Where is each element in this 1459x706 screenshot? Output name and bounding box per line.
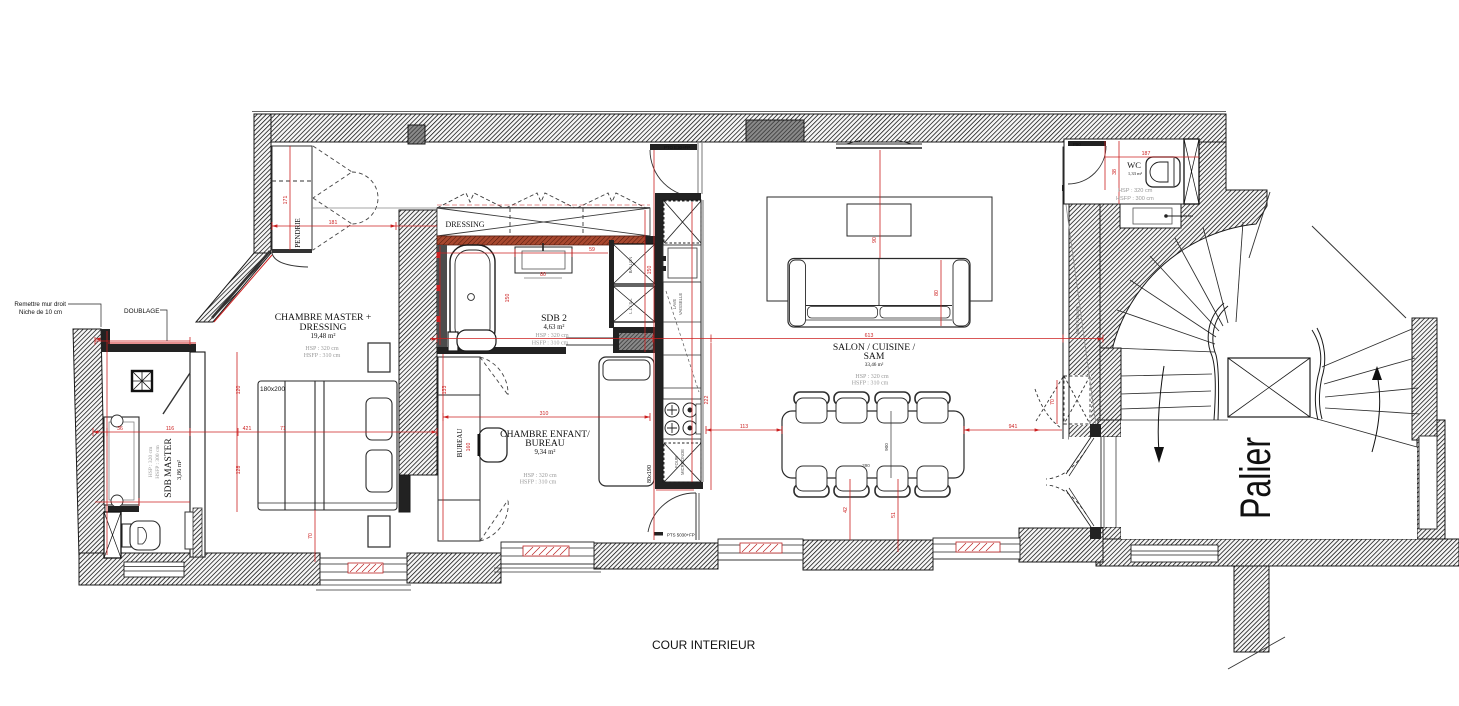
- svg-text:181: 181: [329, 220, 338, 226]
- svg-text:WC: WC: [1127, 160, 1141, 170]
- svg-text:51: 51: [891, 512, 897, 518]
- svg-text:80: 80: [540, 272, 546, 278]
- svg-text:187: 187: [1142, 151, 1151, 157]
- svg-text:L.L / S.L: L.L / S.L: [628, 298, 633, 314]
- svg-text:HSP : 320 cm: HSP : 320 cm: [148, 446, 154, 477]
- svg-text:120: 120: [236, 386, 242, 395]
- svg-text:70: 70: [1050, 399, 1056, 405]
- svg-text:HSP : 320 cm: HSP : 320 cm: [523, 473, 557, 479]
- svg-text:SAM: SAM: [864, 351, 885, 362]
- svg-text:42: 42: [843, 507, 849, 513]
- svg-text:HSFP : 310 cm: HSFP : 310 cm: [532, 341, 569, 347]
- svg-text:BUREAU: BUREAU: [456, 429, 464, 458]
- svg-text:180x200: 180x200: [260, 386, 285, 393]
- svg-text:BB-OT/160x95: BB-OT/160x95: [1075, 305, 1080, 333]
- svg-text:133: 133: [442, 386, 448, 395]
- svg-text:941: 941: [1009, 424, 1018, 430]
- svg-text:59: 59: [589, 247, 595, 253]
- svg-text:150: 150: [647, 266, 653, 275]
- svg-text:36: 36: [117, 426, 123, 432]
- svg-text:HSP : 320 cm: HSP : 320 cm: [535, 333, 569, 339]
- svg-text:113: 113: [740, 424, 748, 430]
- svg-text:71: 71: [280, 426, 286, 432]
- svg-text:128: 128: [236, 466, 242, 475]
- svg-text:DOUBLAGE: DOUBLAGE: [124, 308, 160, 315]
- svg-text:160: 160: [466, 443, 472, 452]
- svg-text:390: 390: [862, 463, 870, 468]
- svg-text:SDB MASTER: SDB MASTER: [164, 438, 174, 498]
- svg-text:VAISSELLE: VAISSELLE: [678, 293, 683, 315]
- svg-text:HSFP : 310 cm: HSFP : 310 cm: [304, 353, 341, 359]
- svg-text:HSP : 320 cm: HSP : 320 cm: [855, 374, 889, 380]
- svg-text:SDB 2: SDB 2: [541, 313, 567, 324]
- svg-text:Palier: Palier: [1232, 437, 1280, 519]
- svg-text:4,63 m²: 4,63 m²: [544, 324, 565, 331]
- svg-text:Niche de 10 cm: Niche de 10 cm: [19, 309, 62, 316]
- svg-text:90: 90: [872, 237, 878, 243]
- svg-text:PTS 5030+FP: PTS 5030+FP: [667, 533, 695, 538]
- svg-text:80x190: 80x190: [647, 465, 653, 483]
- svg-text:HSP : 320 cm: HSP : 320 cm: [1118, 188, 1153, 194]
- svg-text:33,46 m²: 33,46 m²: [865, 362, 884, 368]
- svg-text:80: 80: [934, 290, 940, 296]
- svg-text:COUR INTERIEUR: COUR INTERIEUR: [652, 638, 756, 652]
- svg-text:MICROONDE: MICROONDE: [680, 449, 685, 475]
- svg-text:3,86 m²: 3,86 m²: [176, 460, 183, 480]
- svg-text:LAVE: LAVE: [672, 299, 677, 310]
- svg-text:900: 900: [884, 443, 889, 451]
- svg-text:HSFP : 310 cm: HSFP : 310 cm: [520, 480, 557, 486]
- svg-text:DRESSING: DRESSING: [445, 220, 484, 229]
- svg-text:310: 310: [540, 411, 549, 417]
- svg-text:421: 421: [243, 426, 252, 432]
- svg-text:PTO E30+FP: PTO E30+FP: [664, 145, 690, 150]
- svg-text:9,34 m²: 9,34 m²: [535, 449, 556, 456]
- svg-text:HSFP : 300 cm: HSFP : 300 cm: [155, 445, 161, 479]
- svg-text:171: 171: [283, 196, 289, 205]
- svg-text:HSFP : 300 cm: HSFP : 300 cm: [1116, 196, 1154, 202]
- svg-text:FOUR: FOUR: [674, 456, 679, 468]
- svg-text:613: 613: [865, 333, 874, 339]
- svg-text:19,48 m²: 19,48 m²: [310, 332, 335, 340]
- svg-text:BUREAU: BUREAU: [525, 438, 565, 449]
- svg-text:Remettre mur droit: Remettre mur droit: [14, 301, 66, 308]
- svg-text:HSFP : 310 cm: HSFP : 310 cm: [852, 381, 889, 387]
- svg-text:HSP : 320 cm: HSP : 320 cm: [305, 346, 339, 352]
- svg-text:PENDRIE: PENDRIE: [294, 218, 302, 248]
- svg-text:38: 38: [1112, 169, 1118, 175]
- svg-text:116: 116: [166, 426, 174, 432]
- svg-text:150: 150: [505, 294, 511, 303]
- svg-text:BALLON: BALLON: [628, 257, 633, 274]
- svg-text:222: 222: [704, 396, 710, 405]
- svg-text:P90: P90: [1073, 142, 1081, 147]
- svg-text:70: 70: [308, 533, 314, 539]
